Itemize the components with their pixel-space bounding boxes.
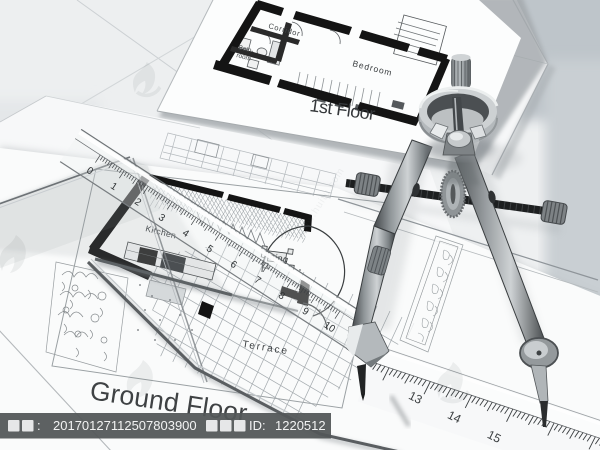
svg-text:20170127112507803900: 20170127112507803900	[53, 418, 197, 433]
svg-text::: :	[37, 418, 41, 433]
svg-text:1220512: 1220512	[275, 418, 326, 433]
svg-text:ID:: ID:	[249, 418, 266, 433]
